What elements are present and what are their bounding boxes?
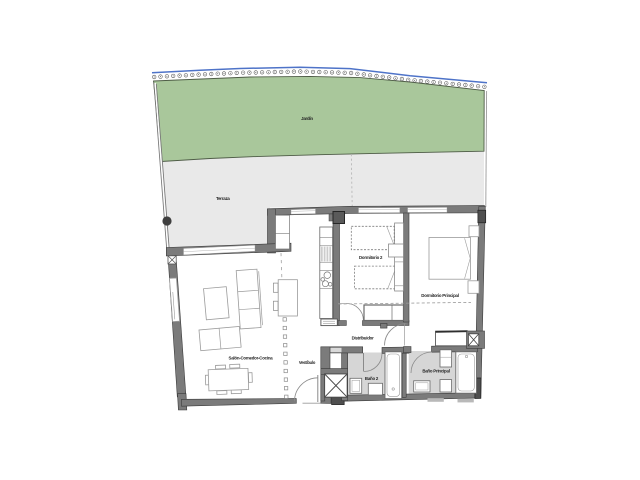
svg-text:Salón-Comedor-Cocina: Salón-Comedor-Cocina — [229, 356, 274, 361]
svg-text:Distribuidor: Distribuidor — [352, 336, 375, 341]
svg-text:Jardín: Jardín — [301, 116, 313, 121]
svg-text:Dormitorio Principal: Dormitorio Principal — [421, 293, 458, 298]
svg-text:Dormitorio 2: Dormitorio 2 — [359, 255, 383, 260]
svg-text:Baño Principal: Baño Principal — [422, 369, 449, 374]
svg-text:Vestíbulo: Vestíbulo — [299, 360, 316, 365]
svg-text:Baño 2: Baño 2 — [365, 376, 379, 381]
svg-text:Terraza: Terraza — [216, 196, 230, 201]
